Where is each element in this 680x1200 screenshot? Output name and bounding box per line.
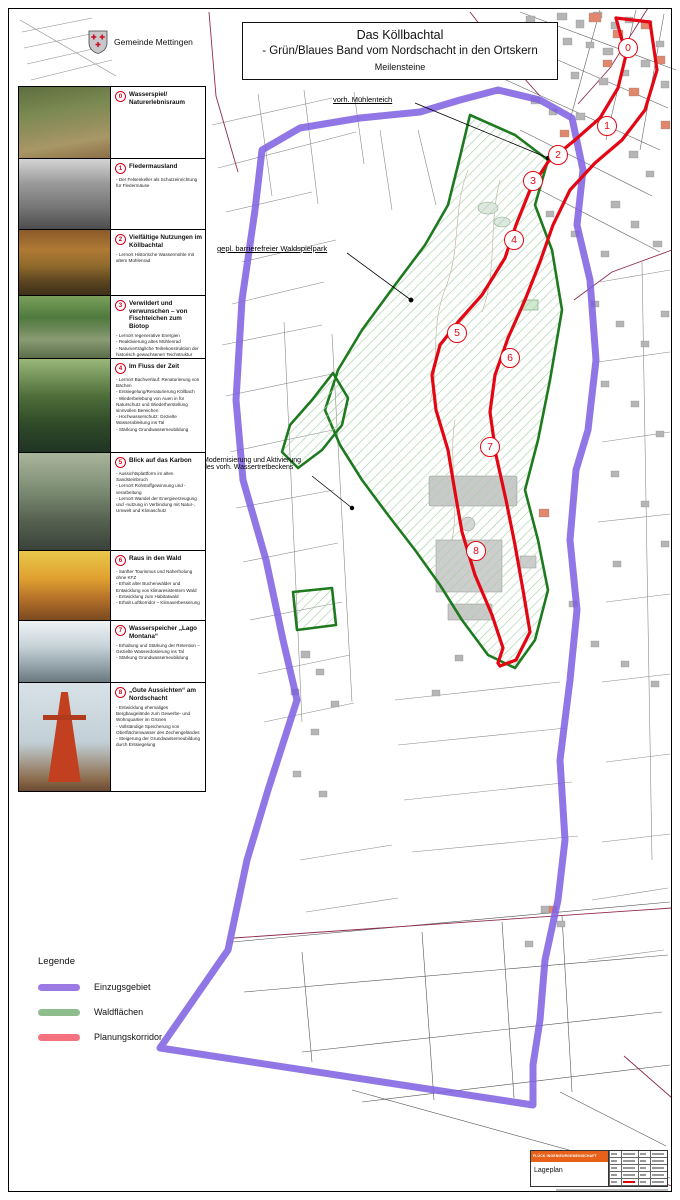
title-block-cell [638,1179,650,1186]
file-path-caption [556,1189,668,1191]
title-block-cell [650,1179,667,1186]
map-marker-7: 7 [480,437,500,457]
milestone-number-badge: 3 [115,300,126,311]
milestone-text: 8 „Gute Aussichten“ am Nordschacht Entwi… [111,683,205,791]
milestone-bullet: Vollständige Speicherung von Oberflächen… [116,724,203,736]
drawing-title-block: FLÜCK INGENIEURGEMEINSCHAFT Lageplan [530,1150,668,1187]
milestone-bullet: Der Felsenkeller als Schutzeinrichtung f… [116,177,203,189]
milestone-bullet: Erhalt alter Buchenwälder und Entwicklun… [116,581,203,593]
milestone-bullets: Der Felsenkeller als Schutzeinrichtung f… [116,177,203,189]
map-marker-8: 8 [466,541,486,561]
legend-swatch [38,1009,80,1016]
milestone-title: Blick auf das Karbon [129,457,192,465]
milestone-sidebar: 0 Wasserspiel/ Naturerlebnisraum 1 Flede… [18,86,206,792]
title-block-cell [609,1165,621,1172]
milestone-text: 7 Wasserspeicher „Lago Montana“ Erhaltun… [111,621,205,682]
municipality-name: Gemeinde Mettingen [114,37,193,47]
plan-subtitle: - Grün/Blaues Band vom Nordschacht in de… [243,45,557,57]
milestone-text: 1 Fledermausland Der Felsenkeller als Sc… [111,159,205,229]
legend-title: Legende [38,956,162,967]
milestone-title: Raus in den Wald [129,555,181,563]
map-marker-5: 5 [447,323,467,343]
title-block-cell [650,1172,667,1179]
title-block-cell [609,1179,621,1186]
map-marker-6: 6 [500,348,520,368]
milestone-number-badge: 6 [115,555,126,566]
milestone-photo [19,621,111,682]
milestone-row: 7 Wasserspeicher „Lago Montana“ Erhaltun… [19,621,205,683]
legend: Legende Einzugsgebiet Waldflächen Planun… [38,956,162,1042]
milestone-bullet: Lernort Rohstoffgewinnung und -verarbeit… [116,483,203,495]
milestone-title: Verwildert und verwunschen – von Fischte… [129,300,203,330]
milestone-number-badge: 2 [115,234,126,245]
map-marker-0: 0 [618,38,638,58]
milestone-bullet: Stärkung Grundwasserneubildung [116,655,203,661]
title-block-cell [621,1151,638,1158]
map-label-waldspielpark: gepl. barrierefreier Waldspielpark [217,244,327,253]
milestone-bullet: Steigerung der Grundwasserneubildung dur… [116,736,203,748]
company-banner: FLÜCK INGENIEURGEMEINSCHAFT [531,1151,608,1162]
map-marker-1: 1 [597,116,617,136]
milestone-photo [19,159,111,229]
milestone-number-badge: 7 [115,625,126,636]
title-block-cell [621,1158,638,1165]
title-block-cell [609,1158,621,1165]
legend-item: Einzugsgebiet [38,982,162,992]
title-block-cell [638,1158,650,1165]
milestone-number-badge: 4 [115,363,126,374]
milestone-bullet: Lernort Historische Wassermühle mit alte… [116,252,203,264]
title-block-grid [609,1151,667,1186]
milestone-row: 0 Wasserspiel/ Naturerlebnisraum [19,87,205,159]
milestone-bullets: Sanfter Tourismus und Naherholung ohne K… [116,569,203,606]
milestone-title: „Gute Aussichten“ am Nordschacht [129,687,203,702]
milestone-bullet: Wiederbelebung von Auen in für Naturschu… [116,396,203,415]
legend-label: Planungskorridor [94,1032,162,1042]
milestone-title: Fledermausland [129,163,177,171]
milestone-bullet: Entwicklung ehemaliges Bergbaugelände zu… [116,705,203,724]
milestone-photo [19,453,111,550]
map-marker-2: 2 [548,145,568,165]
milestone-bullet: Naturverträgliche Teilrekonstruktion der… [116,346,203,358]
milestone-photo [19,296,111,358]
map-marker-4: 4 [504,230,524,250]
milestone-bullets: Lernort Historische Wassermühle mit alte… [116,252,203,264]
milestone-photo [19,359,111,452]
title-block-cell [621,1172,638,1179]
milestone-photo [19,87,111,158]
milestone-bullets: Aussichtsplattform im alten Sandsteinbru… [116,471,203,514]
title-block-cell [650,1158,667,1165]
milestone-row: 8 „Gute Aussichten“ am Nordschacht Entwi… [19,683,205,791]
milestone-row: 6 Raus in den Wald Sanfter Tourismus und… [19,551,205,621]
title-block-cell [650,1151,667,1158]
milestone-row: 3 Verwildert und verwunschen – von Fisch… [19,296,205,359]
milestone-text: 6 Raus in den Wald Sanfter Tourismus und… [111,551,205,620]
milestone-bullets: Entwicklung ehemaliges Bergbaugelände zu… [116,705,203,748]
plan-title: Das Köllbachtal [243,28,557,42]
waldflaechen-areas [282,115,562,668]
milestone-row: 1 Fledermausland Der Felsenkeller als Sc… [19,159,205,230]
milestone-bullet: Lernort Bachverlauf: Renaturierung von B… [116,377,203,389]
title-block-left: FLÜCK INGENIEURGEMEINSCHAFT Lageplan [531,1151,609,1186]
milestone-number-badge: 5 [115,457,126,468]
milestone-photo [19,551,111,620]
title-block-cell [609,1151,621,1158]
milestone-bullets: Lernort regenerative EnergienReaktivieru… [116,333,203,358]
milestone-title: Im Fluss der Zeit [129,363,179,371]
title-block-cell [621,1179,638,1186]
map-label-muehlenteich: vorh. Mühlenteich [333,95,392,104]
milestone-bullet: Erhalt Luftkorridor – Klimaverbesserung [116,600,203,606]
milestone-bullet: Entsiegelung/Renaturierung Köllbach [116,389,203,395]
title-block-cell [609,1172,621,1179]
road-lines [209,8,672,1186]
milestone-photo [19,683,111,791]
milestone-bullet: Erhaltung und Stärkung der Retention – G… [116,643,203,655]
milestone-row: 2 Vielfältige Nutzungen im Köllbachtal L… [19,230,205,296]
milestone-bullet: Aussichtsplattform im alten Sandsteinbru… [116,471,203,483]
milestone-title: Wasserspiel/ Naturerlebnisraum [129,91,203,106]
milestone-bullet: Lernort Wandel der Energieerzeugung und … [116,496,203,515]
milestone-bullet: Hochwasserschutz: Gezielte Wasserableitu… [116,414,203,426]
municipality-header: Gemeinde Mettingen [88,30,193,54]
milestone-row: 4 Im Fluss der Zeit Lernort Bachverlauf:… [19,359,205,453]
milestone-text: 3 Verwildert und verwunschen – von Fisch… [111,296,205,358]
milestone-bullet: Stärkung Grundwasserneubildung [116,427,203,433]
milestone-text: 0 Wasserspiel/ Naturerlebnisraum [111,87,205,158]
title-block-cell [650,1165,667,1172]
plan-sheet: { "document": { "title_line1": "Das Köll… [0,0,680,1200]
plan-subheading: Meilensteine [243,62,557,72]
milestone-bullet: Sanfter Tourismus und Naherholung ohne K… [116,569,203,581]
title-block-cell [621,1165,638,1172]
title-box: Das Köllbachtal - Grün/Blaues Band vom N… [242,22,558,80]
legend-label: Waldflächen [94,1007,143,1017]
legend-item: Waldflächen [38,1007,162,1017]
legend-swatch [38,984,80,991]
legend-item: Planungskorridor [38,1032,162,1042]
milestone-photo [19,230,111,295]
milestone-text: 4 Im Fluss der Zeit Lernort Bachverlauf:… [111,359,205,452]
milestone-title: Vielfältige Nutzungen im Köllbachtal [129,234,203,249]
legend-label: Einzugsgebiet [94,982,151,992]
milestone-bullets: Lernort Bachverlauf: Renaturierung von B… [116,377,203,433]
milestone-text: 5 Blick auf das Karbon Aussichtsplattfor… [111,453,205,550]
title-block-cell [638,1165,650,1172]
milestone-text: 2 Vielfältige Nutzungen im Köllbachtal L… [111,230,205,295]
milestone-number-badge: 1 [115,163,126,174]
milestone-title: Wasserspeicher „Lago Montana“ [129,625,203,640]
drawing-type-label: Lageplan [531,1162,608,1179]
legend-swatch [38,1034,80,1041]
milestone-row: 5 Blick auf das Karbon Aussichtsplattfor… [19,453,205,551]
map-marker-3: 3 [523,171,543,191]
title-block-cell [638,1151,650,1158]
map-label-wassertretbecken: Modernisierung und Aktivierung des vorh.… [203,457,301,471]
milestone-number-badge: 8 [115,687,126,698]
milestone-bullets: Erhaltung und Stärkung der Retention – G… [116,643,203,662]
coat-of-arms-icon [88,30,108,54]
milestone-number-badge: 0 [115,91,126,102]
title-block-cell [638,1172,650,1179]
